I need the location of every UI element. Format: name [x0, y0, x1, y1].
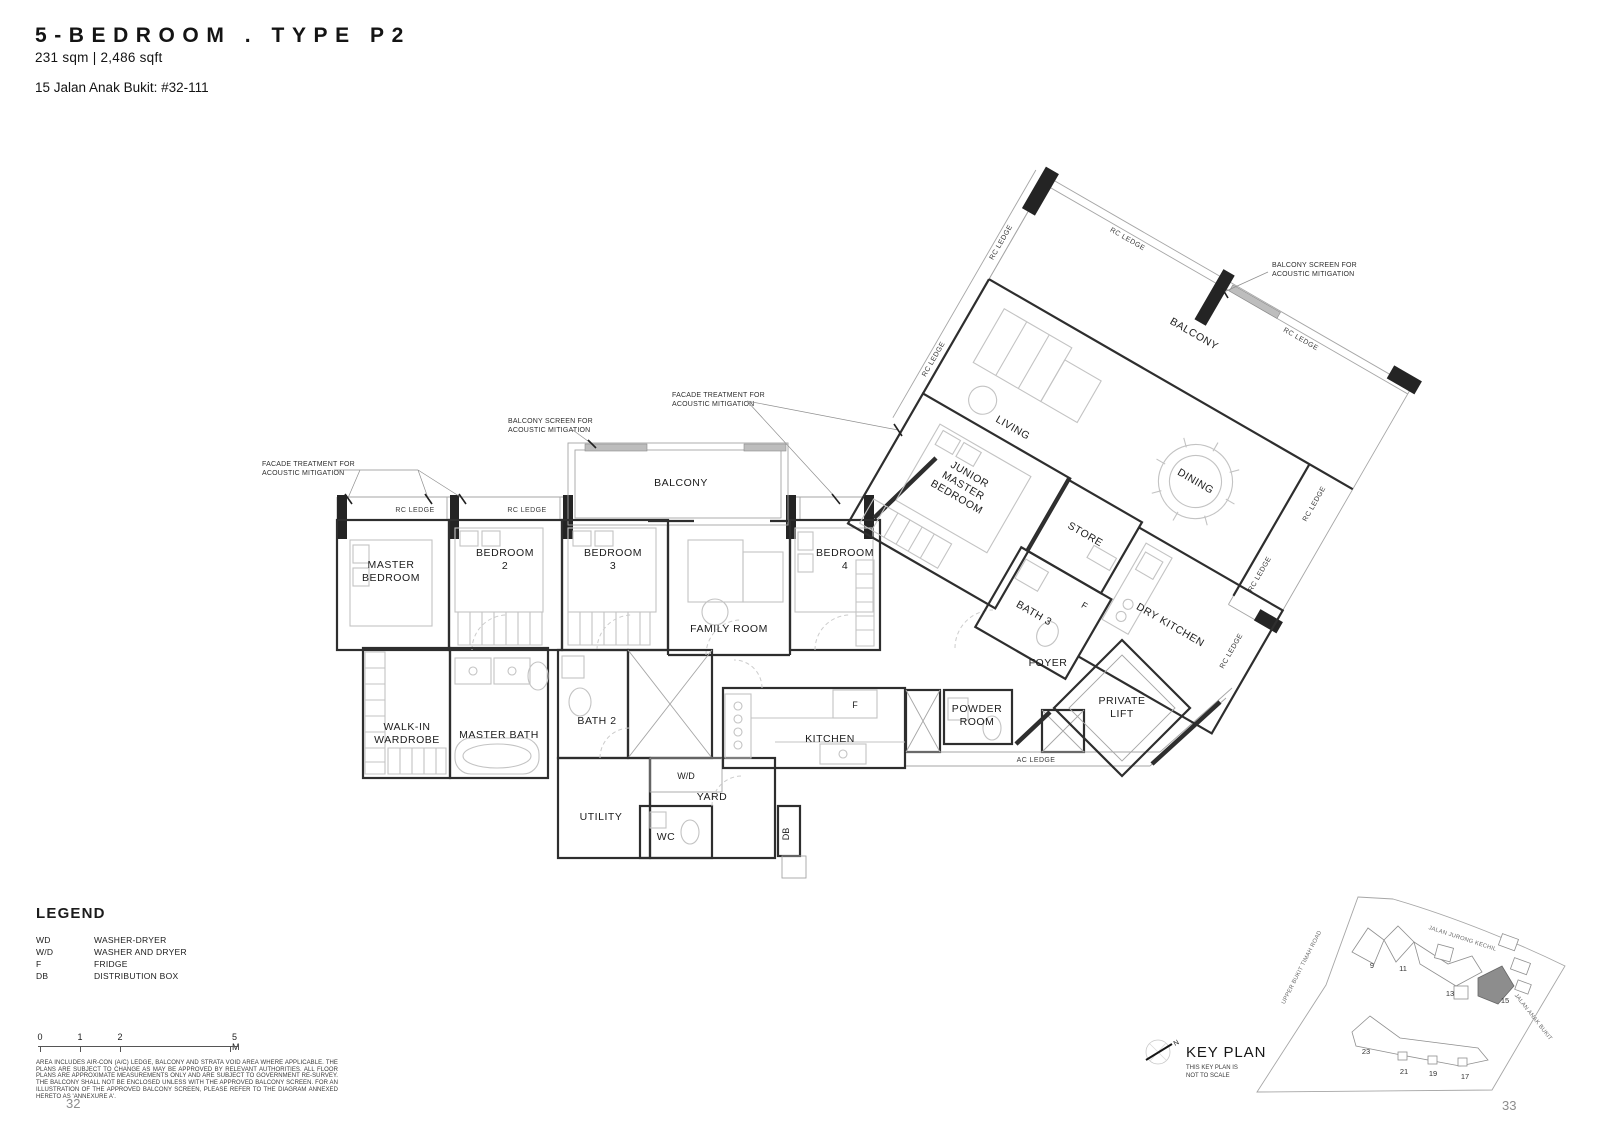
room-label-wc: WC [657, 831, 676, 843]
scale-tick-0: 0 [37, 1032, 42, 1042]
keyplan-building [1384, 926, 1414, 962]
tag-fridge-dry-kitchen: F [1080, 600, 1090, 612]
keyplan-number-13: 13 [1446, 989, 1454, 998]
mid-balcony: BALCONY [568, 443, 788, 525]
tag-db: DB [781, 828, 791, 841]
keyplan-number-9: 9 [1370, 961, 1374, 970]
room-label-powder: ROOM [960, 716, 995, 728]
room-label-bath2: BATH 2 [577, 715, 616, 727]
room-label-kitchen: KITCHEN [805, 733, 855, 745]
room-label-bedroom4: BEDROOM [816, 547, 874, 559]
room-label-walk-in: WALK-IN [383, 721, 430, 733]
room-label-master-bedroom: MASTER [368, 559, 415, 571]
keyplan-number-17: 17 [1461, 1072, 1469, 1081]
keyplan-number-21: 21 [1400, 1067, 1408, 1076]
legend-desc: DISTRIBUTION BOX [94, 970, 187, 982]
keyplan-building [1398, 1052, 1407, 1060]
rc-ledge-label: RC LEDGE [507, 507, 546, 514]
room-label-balcony-mid: BALCONY [654, 477, 708, 489]
bed-2 [455, 528, 543, 645]
keyplan-number-11: 11 [1399, 964, 1407, 973]
legend-row: WDWASHER-DRYER [36, 934, 187, 946]
scale-tick-5m: 5 M [232, 1032, 240, 1052]
balcony-screen [585, 444, 647, 451]
service-strip: AC LEDGE WALK [363, 648, 1232, 878]
rc-ledge-label: RC LEDGE [1247, 556, 1273, 593]
keyplan-title: KEY PLAN [1186, 1044, 1266, 1061]
scale-bar-line [38, 1046, 238, 1047]
legend: LEGEND WDWASHER-DRYER W/DWASHER AND DRYE… [36, 905, 187, 982]
wardrobe-comb [365, 652, 446, 774]
keyplan-building [1352, 928, 1384, 964]
legend-desc: WASHER-DRYER [94, 934, 187, 946]
keyplan-building [1458, 1058, 1467, 1066]
annotation-balcony-screen-left: ACOUSTIC MITIGATION [508, 427, 590, 434]
master-bath-fixtures [455, 658, 548, 774]
rc-ledge-strip: RC LEDGE RC LEDGE [337, 495, 874, 539]
floor-plan: RC LEDGE RC LEDGE BALCONY [0, 0, 1600, 1148]
page-number-left: 32 [66, 1096, 80, 1111]
legend-abbr: F [36, 958, 94, 970]
room-label-private-lift: LIFT [1110, 708, 1134, 720]
north-label: N [1173, 1039, 1181, 1048]
room-label-bedroom3: 3 [610, 560, 616, 572]
keyplan-note: NOT TO SCALE [1186, 1073, 1230, 1079]
living-wing: BALCONY RC LEDGE RC LEDGE RC LEDGE RC LE… [823, 161, 1422, 759]
room-label-balcony-main: BALCONY [1168, 315, 1221, 352]
keyplan-number-23: 23 [1362, 1047, 1370, 1056]
family-room-furniture [688, 540, 783, 625]
rc-ledge-label: RC LEDGE [1219, 633, 1245, 670]
kitchen-fixtures [725, 690, 905, 764]
legend-desc: WASHER AND DRYER [94, 946, 187, 958]
legend-row: DBDISTRIBUTION BOX [36, 970, 187, 982]
keyplan-note: THIS KEY PLAN IS [1186, 1065, 1238, 1071]
rc-ledge-label: RC LEDGE [1302, 485, 1328, 522]
room-label-store: STORE [1066, 520, 1105, 550]
ac-ledge-label: AC LEDGE [1017, 757, 1056, 764]
annotation-facade-left: ACOUSTIC MITIGATION [262, 470, 344, 477]
page-number-right: 33 [1502, 1098, 1516, 1113]
living-furniture [952, 309, 1108, 459]
legend-abbr: DB [36, 970, 94, 982]
balcony-screen [1229, 285, 1280, 319]
road-label-jalan-anak-bukit: JALAN ANAK BUKIT [1513, 993, 1553, 1042]
annotation-balcony-screen-left: BALCONY SCREEN FOR [508, 418, 593, 425]
road-label-upper-bukit-timah: UPPER BUKIT TIMAH ROAD [1281, 930, 1323, 1005]
keyplan-building [1510, 958, 1530, 975]
legend-abbr: WD [36, 934, 94, 946]
tag-wd: W/D [677, 771, 695, 781]
legend-title: LEGEND [36, 905, 187, 922]
keyplan-building [1454, 986, 1468, 999]
bed-4 [795, 528, 874, 646]
annotation-balcony-screen-right: BALCONY SCREEN FOR [1272, 262, 1357, 269]
key-plan: JALAN JURONG KECHIL UPPER BUKIT TIMAH RO… [1146, 897, 1565, 1092]
room-label-bedroom4: 4 [842, 560, 848, 572]
tag-fridge: F [852, 700, 858, 710]
rc-ledge-label: RC LEDGE [395, 507, 434, 514]
room-label-bedroom2: BEDROOM [476, 547, 534, 559]
disclaimer-text: AREA INCLUDES AIR-CON (A/C) LEDGE, BALCO… [36, 1060, 338, 1100]
room-label-walk-in: WARDROBE [374, 734, 440, 746]
foyer-lift: FOYER PRIVATE LIFT RC LEDGE [1016, 633, 1245, 776]
annotation-facade-mid: FACADE TREATMENT FOR [672, 392, 765, 399]
room-label-master-bath: MASTER BATH [459, 729, 539, 741]
room-label-family-room: FAMILY ROOM [690, 623, 768, 635]
room-label-master-bedroom: BEDROOM [362, 572, 420, 584]
keyplan-number-15: 15 [1501, 996, 1509, 1005]
room-label-utility: UTILITY [580, 811, 623, 823]
room-label-bedroom2: 2 [502, 560, 508, 572]
scale-bar: 0 1 2 5 M [38, 1032, 244, 1058]
room-label-dry-kitchen: DRY KITCHEN [1134, 601, 1206, 650]
keyplan-number-19: 19 [1429, 1069, 1437, 1078]
north-compass: N [1146, 1039, 1180, 1064]
keyplan-building [1498, 934, 1518, 951]
annotation-facade-mid: ACOUSTIC MITIGATION [672, 401, 754, 408]
bed-3 [568, 528, 656, 645]
legend-desc: FRIDGE [94, 958, 187, 970]
keyplan-building [1352, 1016, 1488, 1066]
annotations: FACADE TREATMENT FOR ACOUSTIC MITIGATION… [262, 262, 1357, 504]
keyplan-building [1428, 1056, 1437, 1064]
annotation-facade-left: FACADE TREATMENT FOR [262, 461, 355, 468]
room-label-yard: YARD [697, 791, 728, 803]
balcony-screen [744, 444, 786, 451]
scale-tick-1: 1 [77, 1032, 82, 1042]
room-label-powder: POWDER [952, 703, 1002, 715]
room-label-private-lift: PRIVATE [1098, 695, 1145, 707]
legend-abbr: W/D [36, 946, 94, 958]
annotation-balcony-screen-right: ACOUSTIC MITIGATION [1272, 271, 1354, 278]
legend-row: FFRIDGE [36, 958, 187, 970]
scale-tick-2: 2 [117, 1032, 122, 1042]
room-label-bath3: BATH 3 [1014, 598, 1054, 628]
room-label-foyer: FOYER [1029, 657, 1068, 669]
powder-wc-fixtures [650, 698, 1001, 844]
room-label-bedroom3: BEDROOM [584, 547, 642, 559]
legend-row: W/DWASHER AND DRYER [36, 946, 187, 958]
room-label-dining: DINING [1175, 466, 1216, 496]
bath2-fixtures [562, 656, 591, 716]
